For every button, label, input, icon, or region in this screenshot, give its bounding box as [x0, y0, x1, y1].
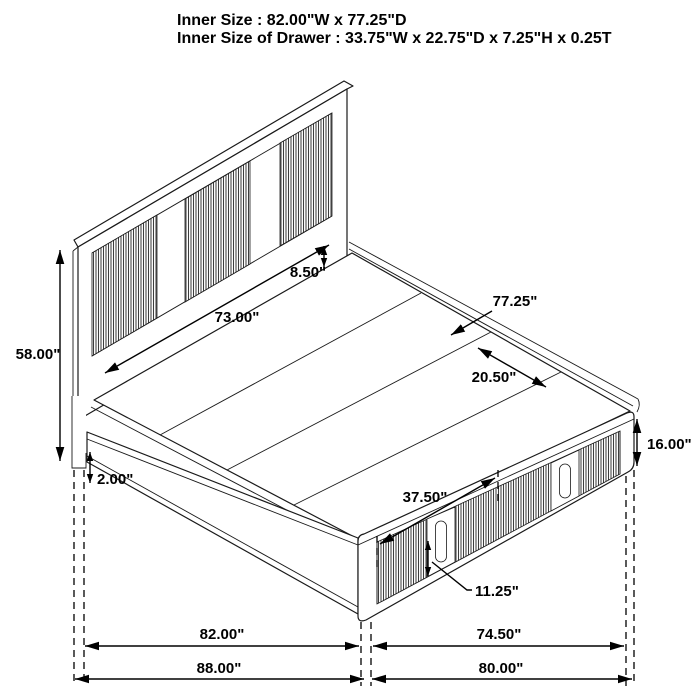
title-line-2: Inner Size of Drawer : 33.75"W x 22.75"D…	[177, 30, 612, 47]
label-footboard-side-length: 74.50"	[477, 626, 522, 643]
label-slat-spacing: 20.50"	[472, 369, 517, 386]
title-line-1: Inner Size : 82.00"W x 77.25"D	[177, 12, 407, 29]
label-drawer-front-height: 11.25"	[475, 583, 519, 600]
drawer-handle-slot-2	[560, 464, 571, 498]
label-leg-clearance: 2.00"	[97, 471, 133, 488]
diagram-canvas: Inner Size : 82.00"W x 77.25"D Inner Siz…	[0, 0, 700, 700]
label-headboard-height: 58.00"	[16, 346, 61, 363]
label-headboard-inner-width: 73.00"	[215, 309, 260, 326]
label-inner-depth: 77.25"	[493, 293, 538, 310]
headboard-left-corner-edge	[73, 247, 78, 251]
right-rail-rim-corner	[637, 399, 639, 412]
label-overall-width: 88.00"	[197, 660, 242, 677]
label-drawer-width: 37.50"	[403, 489, 448, 506]
leg-face	[72, 396, 86, 468]
label-footboard-height: 16.00"	[647, 436, 692, 453]
label-overall-depth: 80.00"	[479, 660, 524, 677]
bed-dimension-diagram: Inner Size : 82.00"W x 77.25"D Inner Siz…	[0, 0, 700, 700]
label-headboard-rail-height: 8.50"	[290, 264, 326, 281]
label-inner-width: 82.00"	[200, 626, 245, 643]
headboard-left-leg	[72, 396, 86, 468]
drawer-handle-slot-1	[436, 521, 447, 562]
